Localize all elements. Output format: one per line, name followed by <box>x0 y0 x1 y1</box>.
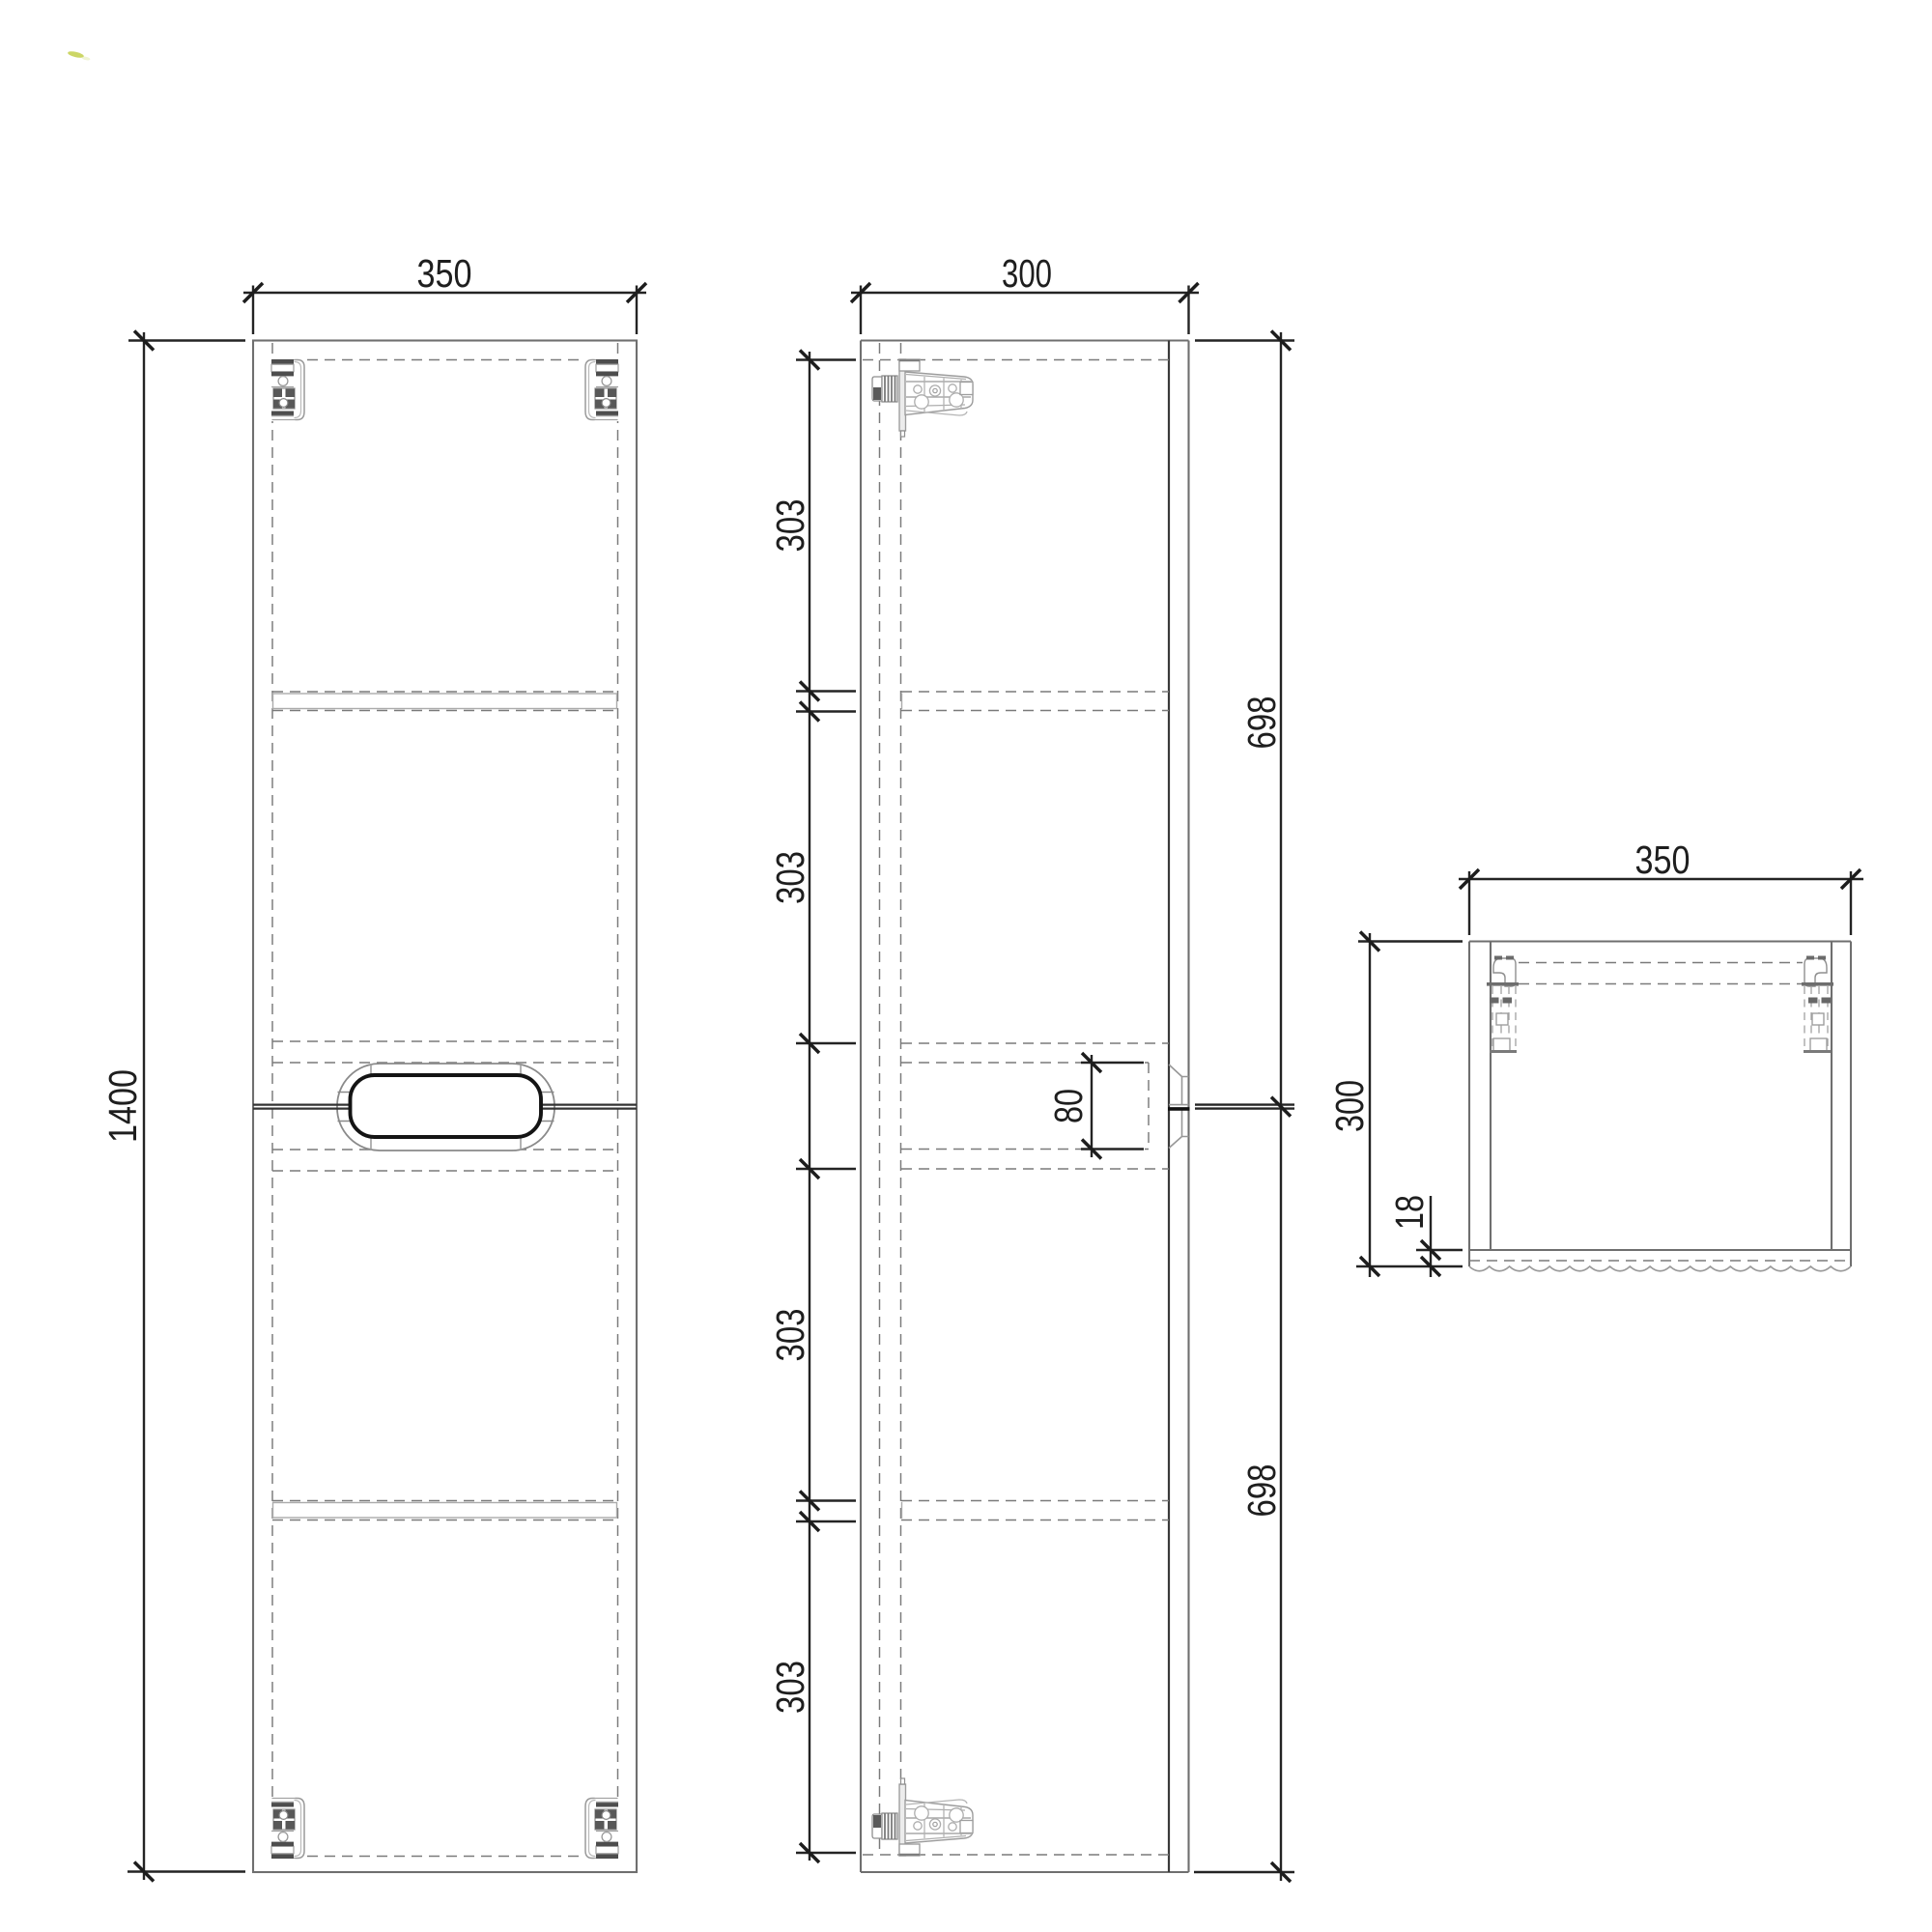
svg-text:303: 303 <box>768 1661 812 1714</box>
svg-text:698: 698 <box>1239 1464 1284 1518</box>
svg-text:1400: 1400 <box>100 1069 145 1143</box>
svg-text:698: 698 <box>1239 696 1284 750</box>
svg-text:300: 300 <box>1002 251 1052 296</box>
svg-text:350: 350 <box>417 251 472 296</box>
svg-text:303: 303 <box>768 851 812 904</box>
svg-text:18: 18 <box>1387 1195 1432 1230</box>
svg-text:80: 80 <box>1046 1089 1091 1123</box>
svg-text:303: 303 <box>768 499 812 553</box>
svg-text:350: 350 <box>1635 838 1690 882</box>
svg-text:303: 303 <box>768 1309 812 1362</box>
svg-text:300: 300 <box>1327 1080 1372 1132</box>
